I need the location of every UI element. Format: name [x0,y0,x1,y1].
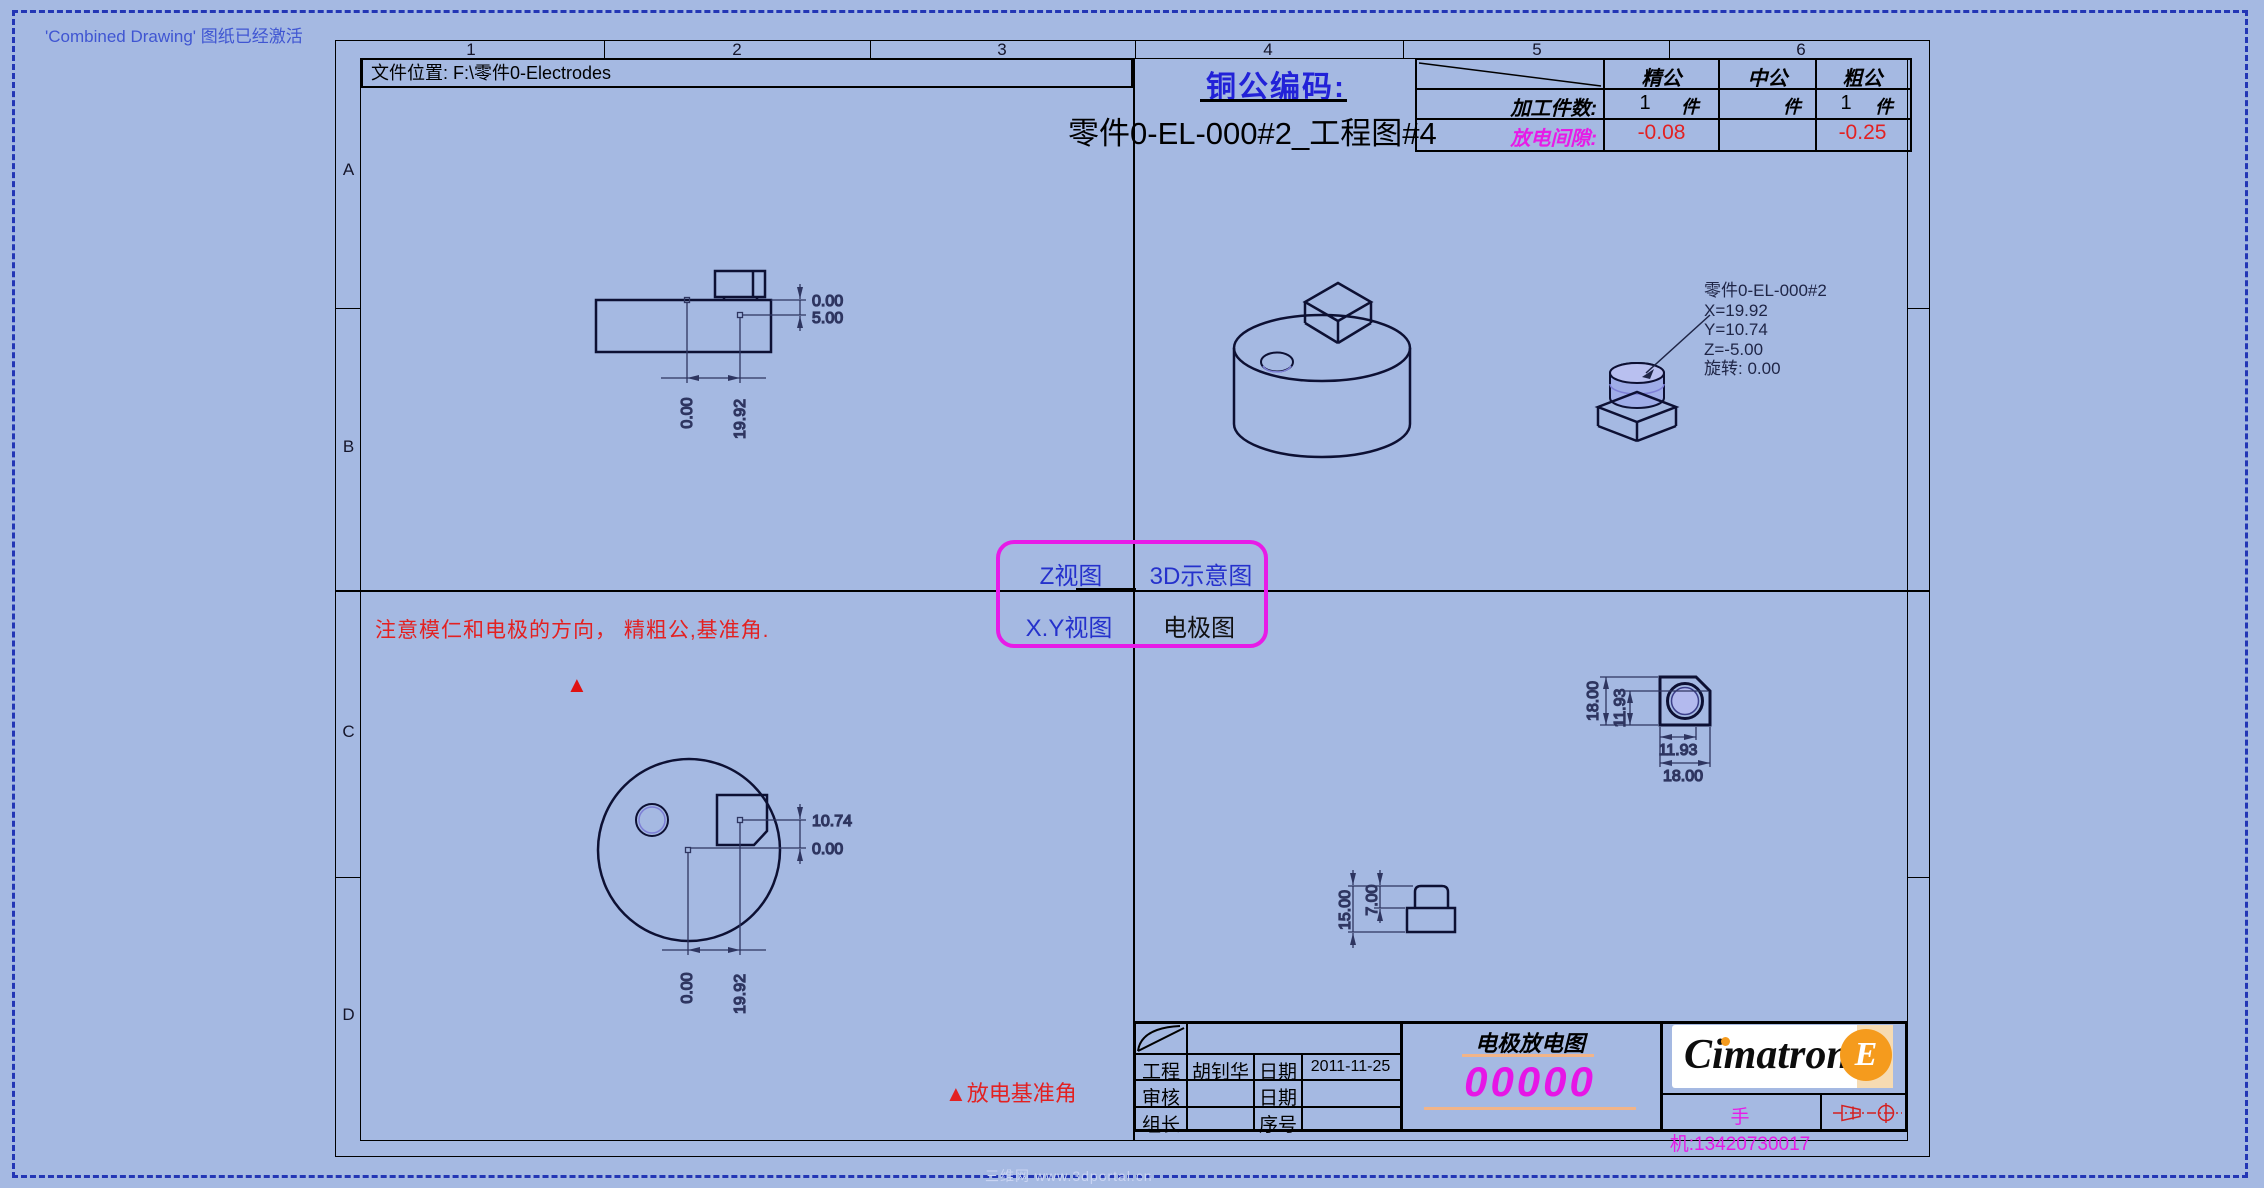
role-reviewer: 审核 [1136,1083,1186,1110]
engineer-name: 胡钊华 [1188,1057,1253,1084]
site-watermark: 三维网 www.3dportal.cn [985,1166,1153,1186]
diagonal-cell [1417,60,1603,88]
date-value-1: 2011-11-25 [1301,1058,1400,1076]
col-tick [1669,40,1670,58]
gap-fine: -0.08 [1605,121,1718,145]
row-tick [1908,308,1930,309]
part-rotation: 旋转: 0.00 [1704,359,1884,379]
qty-fine: 1 [1605,92,1685,115]
discharge-datum-note[interactable]: ▲放电基准角 [945,1076,1077,1108]
grid-col-label: 5 [1515,40,1559,60]
view-label-electrode[interactable]: 电极图 [1136,608,1262,643]
drawing-title[interactable]: 零件0-EL-000#2_工程图#4 [1068,108,1437,153]
grid-row-label: A [336,160,361,180]
table-header-medium: 中公 [1720,62,1815,91]
part-z: Z=-5.00 [1704,340,1884,360]
logo-brand-text: Cimatron [1684,1031,1850,1079]
view-label-3d[interactable]: 3D示意图 [1136,556,1266,591]
row-tick [335,877,360,878]
gap-label: 放电间隙: [1417,122,1597,151]
tb-line [1133,1053,1402,1055]
row-tick [335,308,360,309]
doc-type-underline [1462,1054,1594,1057]
part-x: X=19.92 [1704,301,1884,321]
tb-line [1660,1093,1908,1095]
cad-drawing-canvas: 'Combined Drawing' 图纸已经激活 1 2 3 4 5 6 A … [0,0,2264,1188]
file-location-text: 文件位置: F:\零件0-Electrodes [371,63,611,83]
logo-edition-letter: E [1855,1036,1878,1073]
view-label-z[interactable]: Z视图 [1008,556,1134,591]
qty-unit: 件 [1783,93,1801,119]
grid-row-label: C [336,722,361,742]
grid-col-label: 6 [1779,40,1823,60]
phone-number: 手机:13420730017 [1662,1102,1818,1156]
col-tick [870,40,871,58]
gap-rough: -0.25 [1817,121,1908,145]
grid-col-label: 1 [449,40,493,60]
row-tick [1908,877,1930,878]
qty-unit: 件 [1681,93,1699,119]
date-label-2: 日期 [1255,1083,1301,1110]
part-coordinates-label[interactable]: 零件0-EL-000#2 X=19.92 Y=10.74 Z=-5.00 旋转:… [1704,281,1884,379]
cimatron-logo: Cimatron E [1672,1025,1893,1088]
part-y: Y=10.74 [1704,320,1884,340]
qty-label: 加工件数: [1417,92,1597,121]
direction-warning-note[interactable]: 注意模仁和电极的方向， 精粗公,基准角. [375,614,770,644]
table-header-fine: 精公 [1605,62,1718,91]
grid-col-label: 3 [980,40,1024,60]
document-number: 00000 [1400,1058,1660,1106]
view-label-xy[interactable]: X.Y视图 [1002,608,1136,643]
grid-row-label: B [336,437,361,457]
doc-number-underline [1424,1107,1636,1110]
view-labels-box[interactable]: Z视图 3D示意图 X.Y视图 电极图 [996,540,1268,648]
col-tick [1135,40,1136,58]
datum-triangle-mark: ▲ [566,672,588,698]
qty-rough: 1 [1817,92,1875,115]
qty-unit: 件 [1875,93,1893,119]
grid-col-label: 4 [1246,40,1290,60]
role-leader: 组长 [1136,1110,1186,1137]
table-header-rough: 粗公 [1817,62,1908,91]
col-tick [604,40,605,58]
logo-e-ball: E [1840,1029,1892,1081]
grid-col-label: 2 [715,40,759,60]
electrode-code-underline [1200,99,1347,102]
logo-i-dot [1721,1037,1730,1046]
tb-line [1820,1093,1822,1132]
triangle-icon: ▲ [945,1081,967,1106]
grid-row-label: D [336,1005,361,1025]
part-name: 零件0-EL-000#2 [1704,281,1884,301]
file-location-bar: 文件位置: F:\零件0-Electrodes [361,58,1133,88]
date-label-1: 日期 [1255,1057,1301,1084]
tolerance-table: 精公 中公 粗公 加工件数: 1 件 件 1 件 放电间隙: -0.08 -0.… [1415,58,1912,152]
serial-label: 序号 [1255,1110,1301,1137]
col-tick [1403,40,1404,58]
active-drawing-status: 'Combined Drawing' 图纸已经激活 [45,22,303,47]
role-engineer: 工程 [1136,1057,1186,1084]
